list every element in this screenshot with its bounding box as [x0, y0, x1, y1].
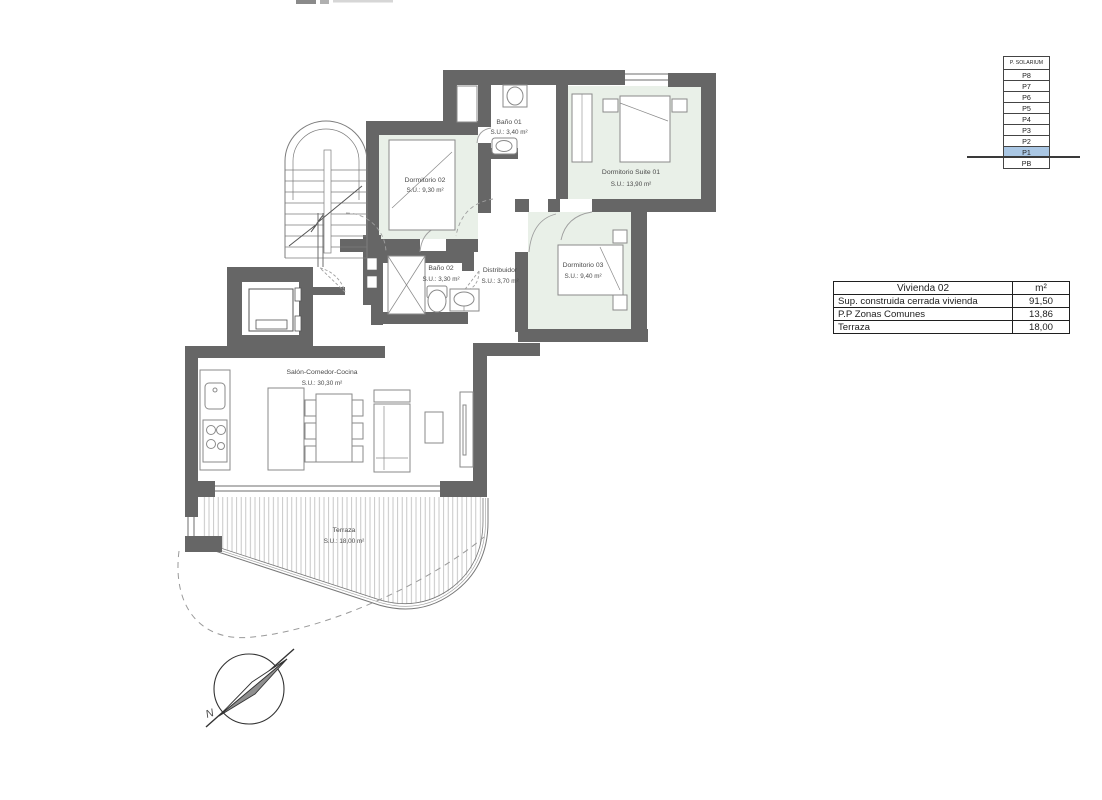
kitchen-sink-icon — [205, 383, 225, 409]
coffee-table-icon — [425, 412, 443, 443]
floor-level-solarium[interactable]: P. SOLARIUM — [1004, 57, 1049, 69]
door-arc-bano01 — [477, 128, 491, 143]
window-salon-terrace — [215, 486, 440, 491]
dining-table-icon — [305, 394, 363, 462]
hob-icon — [203, 420, 227, 462]
sink-icon — [503, 85, 527, 107]
floor-level-pb[interactable]: PB — [1004, 157, 1049, 168]
floor-level-p2[interactable]: P2 — [1004, 135, 1049, 146]
room-area-distribuidor: S.U.: 3,70 m² — [481, 278, 518, 285]
elevator — [242, 282, 301, 335]
closet-icon — [613, 295, 627, 310]
room-area-bano-01: S.U.: 3,40 m² — [490, 129, 527, 136]
tv-unit-icon — [460, 392, 473, 467]
toilet-icon — [427, 286, 447, 312]
table-row: Sup. construida cerrada vivienda 91,50 — [834, 295, 1070, 308]
double-bed-icon — [620, 96, 670, 162]
nightstand-icon — [603, 99, 618, 112]
room-area-bano-02: S.U.: 3,30 m² — [422, 276, 459, 283]
table-unit-header: m² — [1013, 282, 1070, 295]
row-label-sup-construida: Sup. construida cerrada vivienda — [834, 295, 1013, 308]
room-label-terraza: Terraza — [333, 527, 356, 534]
scan-artifact — [296, 0, 393, 4]
window-top — [625, 74, 668, 80]
wardrobe-icon — [572, 94, 592, 162]
floor-plan-drawing: Dormitorio 02 S.U.: 9,30 m² Baño 01 S.U.… — [0, 0, 1102, 800]
compass-icon: N — [204, 649, 294, 727]
shower-icon — [388, 256, 425, 314]
nightstand-icon — [672, 99, 687, 112]
table-title: Vivienda 02 — [834, 282, 1013, 295]
bed-icon — [389, 140, 455, 230]
row-label-zonas-comunes: P.P Zonas Comunes — [834, 308, 1013, 321]
ground-level-line — [967, 156, 1080, 158]
room-label-dormitorio-03: Dormitorio 03 — [563, 262, 604, 269]
terrace-area — [201, 497, 483, 604]
table-header-row: Vivienda 02 m² — [834, 282, 1070, 295]
sink-icon — [450, 289, 479, 311]
window-terrace-left — [188, 517, 194, 536]
room-area-salon: S.U.: 30,30 m² — [302, 380, 343, 387]
room-area-suite-01: S.U.: 13,90 m² — [611, 181, 652, 188]
floor-plan-page: Dormitorio 02 S.U.: 9,30 m² Baño 01 S.U.… — [0, 0, 1102, 800]
table-row: Terraza 18,00 — [834, 321, 1070, 334]
room-label-distribuidor: Distribuidor — [483, 267, 518, 274]
row-value-zonas-comunes: 13,86 — [1013, 308, 1070, 321]
row-value-sup-construida: 91,50 — [1013, 295, 1070, 308]
row-label-terraza: Terraza — [834, 321, 1013, 334]
closet-icon — [457, 86, 477, 122]
room-label-dormitorio-02: Dormitorio 02 — [405, 177, 446, 184]
floor-level-p4[interactable]: P4 — [1004, 113, 1049, 124]
room-label-salon: Salón-Comedor-Cocina — [286, 369, 357, 376]
floor-level-p8[interactable]: P8 — [1004, 69, 1049, 80]
compass-north-label: N — [204, 707, 215, 721]
room-area-dormitorio-02: S.U.: 9,30 m² — [406, 187, 443, 194]
room-area-dormitorio-03: S.U.: 9,40 m² — [564, 273, 601, 280]
stair-break-line — [289, 186, 362, 246]
closet-icon — [613, 230, 627, 243]
room-label-bano-01: Baño 01 — [496, 119, 522, 126]
sofa-icon — [374, 390, 410, 472]
floor-level-p6[interactable]: P6 — [1004, 91, 1049, 102]
room-label-bano-02: Baño 02 — [428, 265, 454, 272]
floor-level-selector: P. SOLARIUM P8 P7 P6 P5 P4 P3 P2 P1 PB — [1003, 56, 1050, 169]
floor-level-p7[interactable]: P7 — [1004, 80, 1049, 91]
bed-icon — [558, 245, 623, 295]
toilet-icon — [492, 138, 517, 154]
floor-level-p5[interactable]: P5 — [1004, 102, 1049, 113]
room-label-suite-01: Dormitorio Suite 01 — [602, 169, 660, 176]
floor-level-p3[interactable]: P3 — [1004, 124, 1049, 135]
kitchen-counter-icon — [200, 370, 230, 470]
row-value-terraza: 18,00 — [1013, 321, 1070, 334]
table-row: P.P Zonas Comunes 13,86 — [834, 308, 1070, 321]
room-area-terraza: S.U.: 18,00 m² — [324, 538, 365, 545]
staircase — [285, 121, 367, 258]
area-summary-table: Vivienda 02 m² Sup. construida cerrada v… — [833, 281, 1070, 334]
kitchen-island-icon — [268, 388, 304, 470]
